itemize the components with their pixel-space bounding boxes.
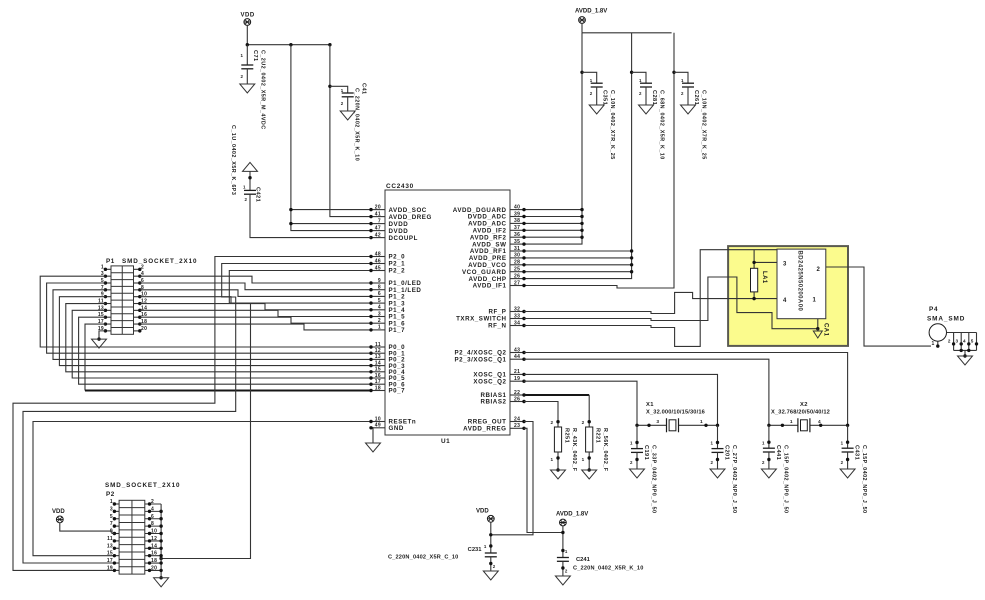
svg-text:37: 37	[514, 225, 520, 231]
svg-text:20: 20	[151, 565, 157, 571]
svg-text:AVDD_RREG: AVDD_RREG	[463, 426, 506, 433]
svg-text:13: 13	[107, 543, 113, 549]
svg-text:43: 43	[514, 347, 520, 353]
svg-text:C_15P_0402_NP0_J_50: C_15P_0402_NP0_J_50	[861, 445, 867, 514]
svg-text:23: 23	[514, 423, 520, 429]
svg-text:VDD: VDD	[52, 509, 65, 515]
svg-text:15: 15	[375, 367, 381, 373]
svg-text:28: 28	[514, 260, 520, 266]
svg-text:5: 5	[378, 298, 381, 304]
svg-text:P1_7: P1_7	[389, 327, 406, 334]
svg-text:44: 44	[514, 354, 520, 360]
svg-text:C231: C231	[468, 547, 483, 553]
svg-text:TXRX_SWITCH: TXRX_SWITCH	[456, 316, 506, 323]
svg-text:1: 1	[378, 325, 381, 331]
svg-text:11: 11	[107, 536, 113, 542]
svg-text:5: 5	[971, 339, 974, 344]
svg-text:C_220N_0402_X5R_K_10: C_220N_0402_X5R_K_10	[573, 566, 644, 572]
svg-text:32: 32	[514, 306, 520, 312]
svg-text:21: 21	[514, 369, 520, 375]
svg-text:26: 26	[514, 273, 520, 279]
svg-text:RF_P: RF_P	[488, 309, 506, 316]
svg-text:42: 42	[375, 232, 381, 238]
svg-text:X2: X2	[800, 402, 808, 408]
svg-text:19: 19	[107, 565, 113, 571]
svg-text:P2_1: P2_1	[389, 261, 406, 268]
svg-text:1: 1	[101, 264, 104, 270]
svg-text:35: 35	[514, 239, 520, 245]
svg-text:14: 14	[151, 543, 157, 549]
svg-text:48: 48	[375, 251, 381, 257]
svg-text:13: 13	[375, 354, 381, 360]
svg-text:LA1: LA1	[761, 271, 767, 284]
svg-text:1: 1	[700, 419, 703, 425]
svg-text:30: 30	[514, 253, 520, 259]
svg-text:22: 22	[514, 390, 520, 396]
svg-text:5: 5	[110, 514, 113, 520]
svg-text:17: 17	[107, 558, 113, 564]
svg-text:46: 46	[375, 258, 381, 264]
svg-text:2: 2	[141, 264, 144, 270]
svg-text:33: 33	[514, 313, 520, 319]
svg-text:1: 1	[932, 341, 935, 347]
svg-text:C_10N_0402_X7R_K_25: C_10N_0402_X7R_K_25	[701, 90, 707, 160]
svg-text:C_15P_0402_NP0_J_50: C_15P_0402_NP0_J_50	[782, 445, 788, 514]
svg-text:C_220N_0402_X5R_C_10: C_220N_0402_X5R_C_10	[388, 555, 459, 561]
svg-text:6: 6	[151, 514, 154, 520]
svg-text:P2_3/XOSC_Q1: P2_3/XOSC_Q1	[454, 356, 506, 363]
svg-text:8: 8	[378, 285, 381, 291]
svg-text:C_27P_0402_NP0_J_50: C_27P_0402_NP0_J_50	[731, 445, 737, 514]
svg-text:31: 31	[514, 246, 520, 252]
svg-text:R_43K_0402_F: R_43K_0402_F	[571, 428, 577, 472]
svg-text:X_32.000/10/15/30/16: X_32.000/10/15/30/16	[646, 410, 705, 416]
svg-text:7: 7	[378, 218, 381, 224]
svg-text:C261: C261	[693, 90, 699, 105]
svg-text:25: 25	[514, 267, 520, 273]
svg-text:4: 4	[963, 339, 966, 344]
svg-text:2: 2	[582, 420, 585, 425]
svg-text:8: 8	[151, 521, 154, 527]
svg-text:16: 16	[375, 373, 381, 379]
svg-text:45: 45	[375, 265, 381, 271]
svg-text:18: 18	[375, 385, 381, 391]
svg-text:3: 3	[656, 419, 659, 425]
svg-text:C281: C281	[651, 90, 657, 105]
svg-text:R221: R221	[595, 428, 601, 443]
svg-text:49: 49	[375, 423, 381, 429]
svg-text:AVDD_SOC: AVDD_SOC	[389, 207, 427, 214]
svg-text:2: 2	[550, 420, 553, 425]
svg-text:U1: U1	[441, 438, 450, 445]
svg-text:3: 3	[378, 311, 381, 317]
svg-text:20: 20	[141, 326, 147, 332]
svg-text:R251: R251	[564, 428, 570, 443]
svg-text:P2_2: P2_2	[389, 268, 406, 275]
svg-text:R_56K_0402_F: R_56K_0402_F	[602, 428, 608, 472]
svg-text:XOSC_Q2: XOSC_Q2	[473, 378, 506, 385]
svg-text:1: 1	[582, 457, 585, 462]
svg-text:10: 10	[151, 529, 157, 535]
svg-text:1: 1	[110, 499, 113, 505]
svg-text:DVDD: DVDD	[389, 221, 409, 228]
svg-text:C71: C71	[252, 50, 258, 62]
svg-text:C_1U_0402_X5R_K_6P3: C_1U_0402_X5R_K_6P3	[230, 125, 236, 195]
svg-text:1: 1	[550, 457, 553, 462]
svg-text:40: 40	[514, 204, 520, 210]
svg-text:3: 3	[955, 339, 958, 344]
svg-text:C421: C421	[255, 187, 261, 202]
svg-text:SMD_SOCKET_2X10: SMD_SOCKET_2X10	[122, 258, 197, 265]
svg-text:C41: C41	[360, 83, 366, 95]
svg-text:X_32.768/20/50/40/12: X_32.768/20/50/40/12	[771, 410, 830, 416]
svg-text:AVDD_IF1: AVDD_IF1	[473, 283, 507, 290]
svg-text:GND: GND	[389, 425, 404, 432]
svg-text:C201: C201	[724, 445, 730, 460]
svg-text:C241: C241	[576, 557, 591, 563]
svg-text:15: 15	[107, 551, 113, 557]
svg-text:14: 14	[375, 360, 381, 366]
svg-text:39: 39	[514, 211, 520, 217]
svg-text:SMA_SMD: SMA_SMD	[927, 316, 965, 323]
svg-text:11: 11	[375, 342, 381, 348]
svg-text:C441: C441	[775, 445, 781, 460]
svg-text:RBIAS2: RBIAS2	[481, 399, 507, 406]
svg-text:RF_N: RF_N	[488, 323, 506, 330]
svg-text:C_33P_0402_NP0_J_50: C_33P_0402_NP0_J_50	[651, 445, 657, 514]
svg-text:C_68N_0402_X5R_K_10: C_68N_0402_X5R_K_10	[659, 90, 665, 160]
svg-text:P0_7: P0_7	[389, 388, 406, 395]
svg-text:SMD_SOCKET_2X10: SMD_SOCKET_2X10	[105, 482, 180, 489]
svg-text:18: 18	[151, 558, 157, 564]
svg-text:CC2430: CC2430	[386, 183, 414, 190]
svg-text:C191: C191	[643, 445, 649, 460]
svg-text:2: 2	[378, 318, 381, 324]
svg-text:C_220N_0402_X5R_K_10: C_220N_0402_X5R_K_10	[353, 88, 359, 161]
svg-text:3: 3	[110, 506, 113, 512]
svg-text:16: 16	[151, 551, 157, 557]
svg-text:AVDD_1.8V: AVDD_1.8V	[556, 512, 588, 518]
svg-text:VDD: VDD	[241, 13, 255, 19]
svg-text:34: 34	[514, 320, 520, 326]
svg-text:12: 12	[375, 348, 381, 354]
svg-text:P2_0: P2_0	[389, 254, 406, 261]
svg-text:4: 4	[378, 305, 381, 311]
svg-text:4: 4	[818, 419, 821, 425]
svg-text:4: 4	[151, 506, 154, 512]
svg-text:20: 20	[375, 204, 381, 210]
svg-text:DCOUPL: DCOUPL	[389, 235, 418, 242]
svg-text:38: 38	[514, 218, 520, 224]
svg-text:C431: C431	[854, 445, 860, 460]
svg-text:AVDD_1.8V: AVDD_1.8V	[575, 9, 607, 15]
svg-text:P4: P4	[929, 306, 938, 313]
svg-text:P1: P1	[106, 258, 115, 265]
svg-text:C_10N_0402_X7R_K_25: C_10N_0402_X7R_K_25	[609, 90, 615, 160]
svg-text:19: 19	[514, 376, 520, 382]
svg-text:41: 41	[375, 211, 381, 217]
svg-text:VDD: VDD	[476, 509, 489, 515]
svg-text:1: 1	[790, 419, 793, 425]
svg-text:2: 2	[948, 339, 951, 344]
svg-text:CA1: CA1	[823, 323, 829, 337]
svg-text:27: 27	[514, 280, 520, 286]
svg-text:10: 10	[375, 416, 381, 422]
svg-text:AVDD_DREG: AVDD_DREG	[389, 214, 432, 221]
svg-text:P2: P2	[106, 491, 115, 498]
svg-text:BD2425N50200A00: BD2425N50200A00	[797, 251, 803, 312]
svg-text:2: 2	[151, 499, 154, 505]
svg-text:47: 47	[375, 225, 381, 231]
svg-text:7: 7	[110, 521, 113, 527]
svg-text:DVDD: DVDD	[389, 228, 409, 235]
svg-text:26: 26	[514, 396, 520, 402]
svg-text:17: 17	[375, 379, 381, 385]
svg-text:X1: X1	[646, 402, 654, 408]
svg-text:C_2U2_0402_X5R_M_4VDC: C_2U2_0402_X5R_M_4VDC	[260, 50, 266, 130]
svg-text:36: 36	[514, 232, 520, 238]
svg-text:12: 12	[151, 536, 157, 542]
svg-text:9: 9	[378, 278, 381, 284]
svg-text:C351: C351	[602, 90, 608, 105]
svg-text:24: 24	[514, 416, 520, 422]
svg-text:6: 6	[378, 291, 381, 297]
